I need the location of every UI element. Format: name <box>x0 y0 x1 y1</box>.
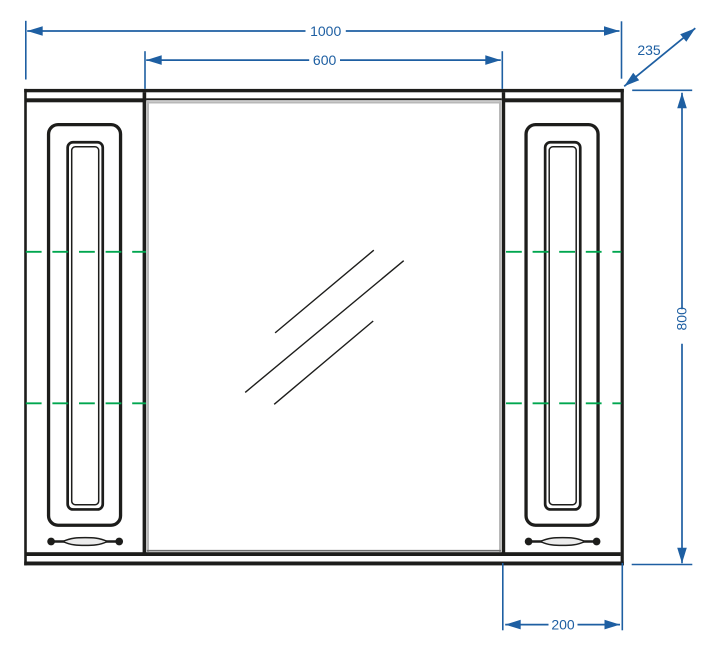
svg-text:235: 235 <box>637 42 661 58</box>
svg-text:600: 600 <box>313 52 337 68</box>
svg-text:200: 200 <box>551 616 575 632</box>
svg-text:1000: 1000 <box>310 23 341 39</box>
svg-text:800: 800 <box>674 307 690 331</box>
